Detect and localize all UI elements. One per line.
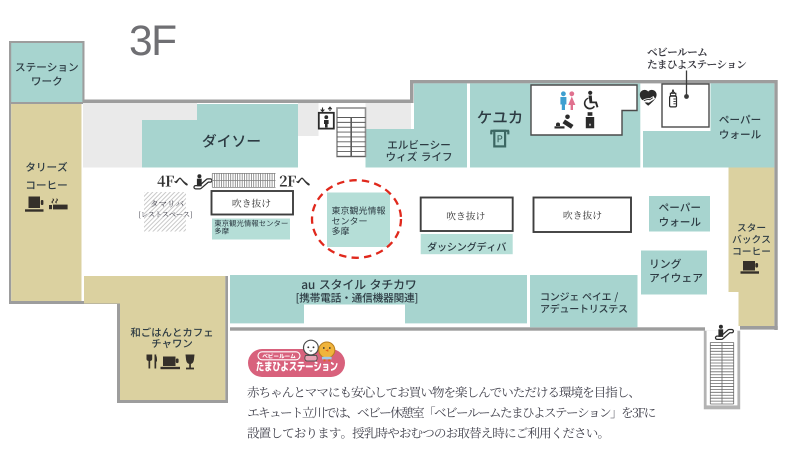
svg-text:3F: 3F xyxy=(129,18,176,65)
